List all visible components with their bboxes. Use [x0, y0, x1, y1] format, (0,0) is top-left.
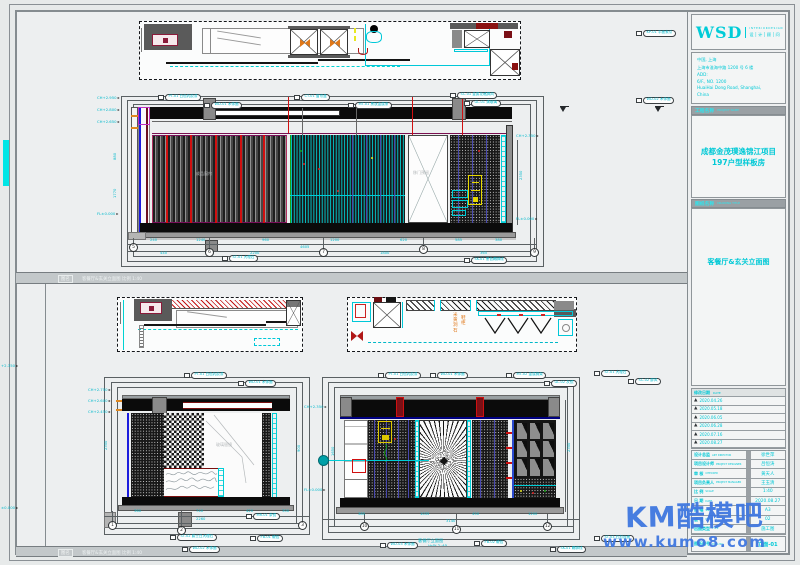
label-bar-tag: 图名	[58, 275, 73, 283]
plan3-wall-hatch	[406, 300, 556, 311]
cabinet-cell	[517, 423, 528, 439]
material-tag: GL-02 灰镜	[544, 380, 577, 387]
plan-maroon-box	[504, 31, 512, 38]
bm-yellow-fixture	[378, 421, 392, 443]
key-plan-top	[139, 21, 521, 80]
tag-leader-box	[380, 543, 386, 548]
material-tag: CT-01 窗帘盒	[294, 94, 330, 101]
plan-red-fill	[476, 23, 498, 29]
axis-leader-b3	[302, 511, 303, 521]
label-bar-tag: 图名	[58, 549, 73, 557]
plan3-xbox	[373, 302, 401, 328]
field-label: 项目设计师	[694, 461, 714, 467]
field-value: 黄天人	[751, 469, 786, 477]
field-label-en: PROJECT MANAGER	[716, 481, 741, 484]
cabinet-cell	[530, 423, 541, 439]
bl-crown-recess	[183, 402, 272, 409]
field-label-en: PROJECT DESIGNER	[716, 463, 741, 466]
display-cabinet	[512, 420, 556, 498]
screen-b-purple-3	[486, 135, 487, 223]
project-header-en: PROJECT NAME	[717, 108, 739, 112]
bl-orange-tick-2	[116, 409, 122, 411]
screen-panel-a	[290, 135, 405, 223]
tag-leader-box	[348, 103, 354, 108]
field-value: 徐世萍	[751, 451, 786, 459]
axis-bubble: 12	[543, 522, 552, 531]
green-speck	[300, 150, 302, 152]
material-tag: ST-01 大理石	[222, 255, 258, 262]
bl-dotted-panel	[131, 413, 164, 500]
red-leader-3	[462, 97, 463, 135]
bm-section-circle	[318, 455, 329, 466]
revision-header-row: 修改日期 DATE	[692, 389, 785, 397]
titleblock-field-row: 项目设计师PROJECT DESIGNER 吕恒涛	[692, 460, 785, 469]
plan-desk-chair	[163, 38, 168, 43]
screen-a-purple-2	[366, 135, 367, 223]
starburst-panel	[419, 420, 467, 498]
bl-marble-cyan-edge	[218, 468, 224, 497]
cabinet-speck-g	[544, 490, 546, 492]
curtain-red-line-5	[263, 135, 265, 223]
tag-leader-box	[636, 98, 642, 103]
address-line: 中国, 上海	[697, 57, 780, 63]
drawing-label-bar-2: 图名 客餐厅&玄关立面图 比例 1:40	[16, 546, 687, 557]
plan3-orange-note-2: 鞋柜	[460, 315, 465, 325]
material-tag-label: KP-01 平面索引	[643, 30, 676, 37]
red-speck-1	[303, 163, 305, 165]
tag-leader-box	[594, 371, 600, 376]
dimension-text: 740	[196, 510, 203, 514]
curtain-box-maroon-line	[146, 107, 148, 238]
revision-date: 2020.08.27	[699, 441, 722, 445]
orange-tick-a	[131, 115, 138, 117]
revision-row: ▲2020.04.26	[692, 397, 785, 406]
main-crown-recess	[207, 110, 340, 116]
plan2-desk-symbol	[140, 302, 162, 314]
section-arrow-flag	[560, 106, 569, 107]
fixture-line	[381, 428, 390, 429]
plan-sofa-arm	[203, 29, 211, 53]
revision-triangle-icon: ▲	[694, 441, 697, 446]
field-label-en: CHECKED	[705, 472, 718, 475]
plan-wall-line	[166, 62, 318, 64]
key-plan-left	[117, 297, 303, 352]
material-tag: SK-01 踢脚线	[550, 546, 586, 553]
bowtie-right-icon	[357, 331, 363, 341]
plan3-shelf	[478, 311, 573, 316]
titleblock-divider	[687, 12, 688, 553]
plan2-wall-line	[144, 324, 266, 326]
material-tag-label: MT-01 黑钛金属条	[355, 102, 392, 109]
tag-leader-box	[506, 373, 512, 378]
plan3-washer	[558, 319, 573, 336]
project-header-bar: 工程名称 PROJECT NAME	[691, 106, 786, 115]
plan2-ladder-strip	[139, 325, 144, 348]
dimension-text: 880	[114, 153, 118, 160]
tag-leader-box	[250, 536, 256, 541]
plan-red-arc	[358, 48, 368, 55]
bl-skirting	[118, 505, 294, 511]
revision-date: 2020.06.05	[699, 416, 722, 420]
field-label-en: SCALE	[705, 490, 713, 493]
axis-bubble: 9	[530, 248, 539, 257]
dimension-text: 3140	[446, 520, 455, 524]
section-arrow-icon	[655, 107, 661, 112]
lift-wall-bottom	[288, 55, 350, 58]
tag-leader-box	[636, 31, 642, 36]
bm-b-purple-1	[480, 420, 481, 498]
axis-bubble: 2	[177, 526, 186, 535]
field-label: 审 核	[694, 471, 703, 477]
curtain-box-bracket	[138, 107, 150, 125]
bm-caption-1: 客餐厅立面图	[418, 539, 443, 543]
left-column-line	[45, 272, 46, 557]
x-cross-icon	[409, 136, 447, 222]
dimension-text: 440	[160, 252, 167, 256]
yellow-speck	[371, 157, 373, 159]
shelf-red-tick-1	[497, 314, 501, 316]
tag-leader-box	[474, 541, 480, 546]
revision-row: ▲2020.06.05	[692, 414, 785, 423]
bl-checker-panel	[164, 413, 204, 468]
level-marker: CH+2.350	[516, 134, 539, 138]
revision-row: ▲2020.06.28	[692, 423, 785, 432]
curtain-red-line-4	[240, 135, 242, 223]
tag-leader-box	[628, 379, 634, 384]
shelf-red-tick-2	[519, 314, 523, 316]
dimension-text: 1800	[380, 252, 389, 256]
material-tag-label: WD-03 木饰面	[387, 542, 418, 549]
dimension-text: 2260	[196, 518, 205, 522]
plan-fixture-cyan	[366, 31, 382, 43]
wardrobe-hanger-triangles	[484, 317, 554, 335]
address-line: HuaiHai Dong Road, Shanghai,	[697, 85, 780, 90]
material-tag-label: PT-01 白色乳胶漆	[191, 372, 227, 379]
cabinet-cell	[517, 459, 528, 475]
axis-bubble: 1	[108, 521, 117, 530]
material-tag: MT-01 黑钛金属条	[348, 102, 392, 109]
address-line: 上海市淮海中路 1200 号 6 楼	[697, 65, 780, 71]
dimension-text: 620	[400, 239, 407, 243]
bm-navy-line	[340, 417, 560, 419]
field-label: 项目负责人	[694, 480, 714, 486]
bm-a-purple-1	[374, 420, 375, 498]
cabinet-speck-r	[532, 492, 534, 494]
material-tag: WD-01 木饰面	[430, 372, 468, 379]
sconce-line1	[472, 182, 479, 183]
plan2-cyan-dashed-rect	[254, 338, 280, 346]
bm-maroon-pier-2	[476, 397, 484, 417]
revision-date: 2020.07.16	[699, 433, 722, 437]
material-tag: PT-01 白色乳胶漆	[184, 372, 227, 379]
main-ceiling-line	[152, 121, 512, 122]
curtain-red-line-1	[166, 135, 168, 223]
main-rail-line	[152, 133, 512, 134]
orange-tick-b	[131, 127, 138, 129]
tag-leader-box	[204, 103, 210, 108]
cyan-box-2	[452, 200, 468, 208]
dimension-text: 420	[246, 510, 253, 514]
curtain-note: 成品窗帘	[196, 172, 212, 176]
tag-leader-box	[464, 258, 470, 263]
wall-sconce	[468, 175, 482, 205]
project-name-box: 成都金茂璞逸锦江项目 197户型样板房	[691, 115, 786, 198]
material-tag: GL-01 清玻璃	[464, 100, 501, 107]
field-label: 设计总监	[694, 452, 710, 458]
burst-cyan-right	[467, 420, 471, 498]
tag-leader-box	[222, 256, 228, 261]
plan2-xbox	[286, 300, 301, 326]
curtain-red-line-3	[215, 135, 217, 223]
dimension-text: 900	[298, 445, 302, 452]
x-cross-icon	[374, 303, 400, 327]
revision-triangle-icon: ▲	[694, 416, 697, 421]
level-marker: +2.350	[1, 364, 18, 368]
margin-cyan-bar	[3, 140, 9, 186]
dimension-text: 2350	[105, 441, 109, 450]
revision-triangle-icon: ▲	[694, 399, 697, 404]
bl-cyan-strip	[272, 413, 277, 500]
main-dim-vline	[517, 140, 518, 225]
red-speck-4	[478, 150, 480, 152]
material-tag: MR-01 茶镜	[246, 513, 280, 520]
plan2-sofa-line	[187, 311, 227, 318]
tag-leader-box	[550, 547, 556, 552]
dimension-text: 380	[495, 239, 502, 243]
level-marker: ±0.000	[1, 506, 18, 510]
dimension-text: 385	[358, 513, 365, 517]
dimension-text: 2350	[568, 443, 572, 452]
project-name-line1: 成都金茂璞逸锦江项目	[692, 146, 785, 157]
material-tag: SC-02 屏风	[628, 378, 661, 385]
dimension-text: 2350	[520, 171, 524, 180]
curtain-panel	[152, 135, 287, 223]
material-tag-label: GL-02 灰镜	[551, 380, 577, 387]
axis-bubble: 7	[319, 248, 328, 257]
material-tag-label: FB-01 硬包	[257, 535, 283, 542]
titleblock-field-row: 设计总监ART DIRECTOR 徐世萍	[692, 451, 785, 460]
plan-sofa-line	[217, 31, 261, 39]
field-value: 吕恒涛	[751, 460, 786, 468]
bl-dim-line-2	[111, 523, 303, 524]
watermark-url: www.kumo8.com	[603, 533, 766, 551]
section-arrow-flag	[655, 106, 664, 107]
plan3-red-fixture	[355, 304, 366, 318]
main-base-block-left	[128, 232, 146, 240]
tag-leader-2	[356, 108, 357, 135]
bl-marble-panel	[164, 468, 218, 497]
drawing-header: 图纸名称	[695, 200, 714, 207]
plan-cyan-counter	[454, 49, 488, 52]
material-tag: FB-01 硬包	[250, 535, 283, 542]
bm-cyan-leader	[329, 460, 429, 461]
red-speck-2	[318, 168, 320, 170]
axis-bubble: 6	[205, 248, 214, 257]
bl-mirror-note: 玻璃银镜	[216, 443, 232, 447]
red-speck-3	[337, 190, 339, 192]
bm-maroon-pier-1	[396, 397, 404, 417]
material-tag: ST-02 爵士白大理石	[170, 534, 217, 541]
titleblock-field-row: 审 核CHECKED 黄天人	[692, 469, 785, 478]
sconce-body	[473, 197, 478, 202]
tag-leader-box	[182, 547, 188, 552]
address-line: China	[697, 92, 780, 97]
tag-leader-box	[294, 95, 300, 100]
address-box: 中国, 上海上海市淮海中路 1200 号 6 楼ADD:6/F., NO. 12…	[691, 52, 786, 104]
cyan-box-3	[452, 210, 466, 216]
door-note: 移门预留	[413, 171, 429, 175]
dimension-text: 585	[455, 239, 462, 243]
tag-leader-box	[464, 101, 470, 106]
drawing-title-box: 客餐厅&玄关立面图	[691, 208, 786, 386]
level-marker: CH+2.450	[88, 410, 111, 414]
cyan-box-1	[452, 190, 468, 198]
cabinet-cell	[530, 441, 541, 457]
level-marker: CH+2.750	[88, 388, 111, 392]
material-tag: PT-01 白色乳胶漆	[158, 94, 201, 101]
cabinet-grid	[514, 420, 556, 478]
axis-bubble: 5	[129, 243, 138, 252]
cad-sheet-page: 成品窗帘 移门预留 图名 客餐厅&玄关立	[0, 0, 800, 565]
revision-triangle-icon: ▲	[694, 407, 697, 412]
level-marker: FL±0.000	[97, 212, 118, 216]
cabinet-base-hatch	[514, 478, 556, 498]
level-marker: CH+2.600	[88, 399, 111, 403]
sconce-line2	[471, 190, 480, 191]
axis-bubble: 11	[452, 525, 461, 534]
bl-blue-line	[127, 413, 129, 508]
bm-a-purple-4	[408, 420, 409, 498]
screen-a-purple-3	[380, 135, 381, 223]
material-tag-label: WD-02 木饰面	[643, 97, 674, 104]
address-line: 6/F., NO. 1200	[697, 79, 780, 84]
plan2-door-leaf	[120, 302, 121, 324]
axis-leader-b2	[181, 511, 182, 526]
axis-bubble: 3	[298, 521, 307, 530]
shelf-red-tick-3	[541, 314, 545, 316]
plan2-red-hatch	[170, 300, 298, 309]
bowtie-right-icon	[335, 39, 340, 47]
main-end-column	[506, 125, 513, 238]
yellow-tick-1	[354, 28, 356, 33]
watermark-title: KM酷模吧	[625, 494, 764, 536]
lift-cab-1	[290, 29, 318, 55]
cabinet-cell	[530, 459, 541, 475]
material-tag-label: ST-02 爵士白大理石	[177, 534, 217, 541]
material-tag: SK-01 黑色踢脚线	[464, 257, 507, 264]
bm-crown-band	[340, 400, 560, 417]
dimension-text: 1200	[528, 513, 537, 517]
level-marker: CH+2.350	[304, 405, 327, 409]
cabinet-cell	[543, 423, 554, 439]
material-tag-label: WD-01 木饰面	[245, 380, 276, 387]
material-tag-label: MT-02 金属搁架	[513, 372, 546, 379]
drawing-header-bar: 图纸名称 DRAWING TITLE	[691, 199, 786, 208]
material-tag-label: SC-01 金属花格屏风	[457, 92, 497, 99]
plan3-hatch-gap-1	[434, 300, 441, 311]
material-tag-label: CT-01 窗帘盒	[301, 94, 330, 101]
level-marker: FL±0.000	[304, 488, 325, 492]
plan3-orange-note-1: 米黄洞石	[452, 312, 457, 332]
dimension-text: 2200	[250, 252, 259, 256]
bl-orange-tick-1	[116, 400, 122, 402]
tag-leader-box	[378, 373, 384, 378]
revision-triangle-icon: ▲	[694, 424, 697, 429]
label-bar-text: 客餐厅&玄关立面图 比例 1:40	[82, 276, 142, 282]
tag-leader-box	[170, 535, 176, 540]
cabinet-cell	[543, 441, 554, 457]
logo-box: WSD I N T E R I O R D E S I G N 设│计│顾│问	[691, 14, 786, 50]
material-tag-label: PT-01 白色乳胶漆	[165, 94, 201, 101]
dimension-text: 450	[472, 513, 479, 517]
material-tag-label: PT-01 白色乳胶漆	[385, 372, 421, 379]
plan-cyan-dashline	[170, 66, 400, 67]
material-tag: KP-01 平面索引	[636, 30, 676, 37]
plan3-hatch-gap-2	[470, 300, 477, 311]
dimension-text: 1200	[330, 239, 339, 243]
cabinet-cell	[543, 459, 554, 475]
x-cross-icon	[465, 31, 489, 47]
level-marker: CH+2.950	[97, 96, 120, 100]
drawing-label-bar-1: 图名 客餐厅&玄关立面图 比例 1:40	[16, 272, 687, 284]
level-marker: FL±0.000	[516, 217, 537, 221]
washer-drum	[562, 324, 570, 332]
material-tag: WD-02 木饰面	[636, 97, 674, 104]
address-lines: 中国, 上海上海市淮海中路 1200 号 6 楼ADD:6/F., NO. 12…	[697, 57, 780, 97]
main-base-band	[140, 223, 512, 232]
tag-leader-box	[430, 373, 436, 378]
material-tag-label: SK-01 踢脚线	[557, 546, 586, 553]
x-cross-icon	[287, 301, 300, 325]
revision-triangle-icon: ▲	[694, 433, 697, 438]
material-tag-label: ST-01 大理石	[229, 255, 258, 262]
revision-row: ▲2020.08.27	[692, 440, 785, 449]
dimension-text: 960	[262, 239, 269, 243]
bm-column-right	[548, 397, 560, 417]
tag-leader-box	[158, 95, 164, 100]
bl-base-band	[122, 497, 290, 505]
material-tag-label: WD-01 木饰面	[211, 102, 242, 109]
yellow-tick-2	[354, 36, 356, 41]
revision-row: ▲2020.05.18	[692, 406, 785, 415]
material-tag-label: WD-01 木饰面	[437, 372, 468, 379]
plan-sofa-line2	[217, 38, 261, 46]
bm-red-speck	[394, 438, 396, 440]
plan-gray-pier	[452, 30, 462, 48]
tag-leader-box	[450, 93, 456, 98]
bm-red-rect	[352, 459, 366, 473]
field-value: 王玉清	[751, 479, 786, 487]
dimension-text: 1770	[114, 189, 118, 198]
section-arrow-icon	[560, 107, 566, 112]
plan3-cyan-dash-bottom	[368, 342, 558, 343]
bm-column-left	[340, 397, 352, 417]
fixture-body	[382, 435, 389, 440]
material-tag-label: WD-02 木饰面	[189, 546, 220, 553]
screen-a-purple-1	[352, 135, 353, 223]
material-tag-label: ST-01 大理石	[601, 370, 630, 377]
screen-a-cyan-mid	[290, 195, 405, 196]
main-dim-line-1	[128, 244, 537, 245]
bm-a-purple-3	[398, 420, 399, 498]
project-header: 工程名称	[695, 107, 714, 114]
material-tag: PT-01 白色乳胶漆	[378, 372, 421, 379]
material-tag-label: SK-01 黑色踢脚线	[471, 257, 507, 264]
tag-leader-box	[594, 536, 600, 541]
material-tag: WD-03 木饰面	[380, 542, 418, 549]
revision-row: ▲2020.07.16	[692, 431, 785, 440]
revision-date: 2020.06.28	[699, 424, 722, 428]
